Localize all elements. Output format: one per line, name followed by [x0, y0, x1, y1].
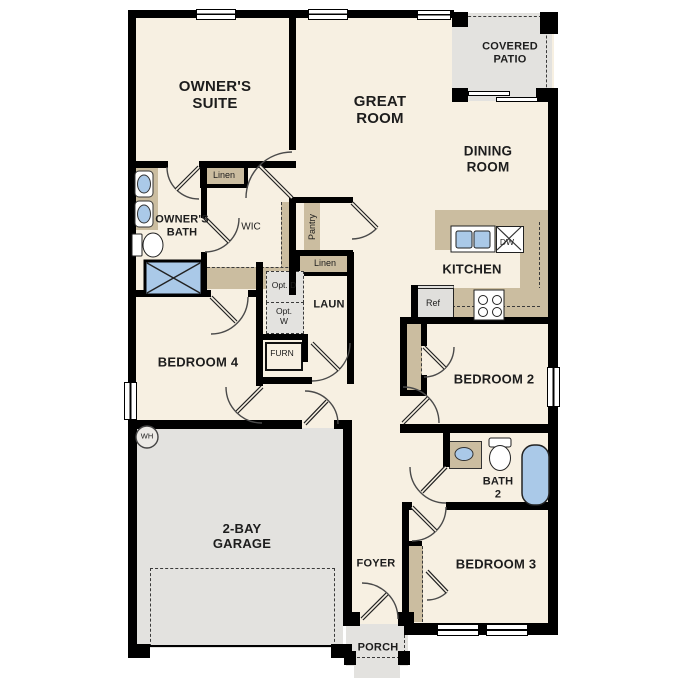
porch-step: [354, 666, 400, 678]
wall-suite-right: [289, 16, 296, 150]
wall-suite-bottom-b: [199, 161, 296, 168]
label-bedroom2: BEDROOM 2: [429, 373, 559, 388]
wall-patio-post-tl: [452, 12, 468, 27]
label-dining-room: DINING ROOM: [453, 143, 523, 174]
label-pantry: Pantry: [307, 214, 317, 240]
label-opt-washer: Opt. W: [271, 307, 297, 327]
window-suite: [196, 9, 236, 20]
label-refrigerator: Ref: [426, 298, 440, 308]
label-wic: WIC: [241, 221, 260, 233]
wall-bed4-right: [256, 290, 263, 386]
label-great-room: GREAT ROOM: [345, 93, 415, 128]
wall-bath2-bottom-b: [446, 502, 558, 510]
wall-bed2-closet-right-a: [421, 324, 427, 346]
bedroom2-closet: [405, 322, 422, 392]
label-water-heater: WH: [141, 433, 154, 442]
wall-bed2-closet-bottom: [400, 390, 427, 396]
wall-laundry-bottom: [256, 377, 312, 384]
window-bedroom4: [124, 382, 137, 420]
wall-laundry-right: [347, 252, 354, 384]
kitchen-counter-front-dashed: [452, 306, 540, 307]
wall-bath-bed4-a: [134, 290, 211, 297]
garage-opening-line: [150, 645, 331, 647]
wall-wic-left-b: [201, 252, 207, 295]
sliding-door-pane-2: [496, 97, 538, 102]
label-covered-patio: COVERED PATIO: [474, 40, 546, 65]
label-linen-upper: Linen: [213, 170, 235, 180]
label-dishwasher: DW: [500, 238, 514, 248]
label-linen-hall: Linen: [314, 258, 336, 268]
wall-left-garage: [128, 425, 137, 653]
label-garage: 2-BAY GARAGE: [195, 522, 290, 552]
label-kitchen: KITCHEN: [442, 263, 501, 278]
wall-patio-post-br: [536, 88, 558, 102]
wall-pantry-bottom: [289, 250, 353, 256]
wall-bath2-left: [443, 433, 450, 467]
wall-foyer-right: [402, 502, 409, 623]
label-furnace: FURN: [270, 349, 294, 359]
floor-plan: OWNER'S SUITE GREAT ROOM COVERED PATIO D…: [0, 0, 687, 687]
wall-garage-bl: [128, 644, 150, 658]
sliding-door-pane-1: [468, 91, 510, 96]
window-great-room-2: [417, 10, 451, 20]
wall-garage-right: [343, 420, 352, 616]
wall-bed3-bottom: [404, 623, 558, 635]
label-bedroom4: BEDROOM 4: [133, 356, 263, 371]
wall-bed3-closet-top: [405, 541, 422, 546]
wall-furn-top: [256, 334, 308, 340]
wall-patio-post-bl: [452, 88, 468, 102]
wall-right: [548, 88, 558, 635]
wall-corridor-bed2: [400, 317, 407, 394]
porch-post-br: [398, 651, 410, 665]
porch-post-bl: [344, 651, 356, 665]
label-owners-bath: OWNER'S BATH: [149, 213, 215, 238]
wall-bed2-top: [405, 317, 558, 324]
wall-pantry-top: [289, 197, 353, 203]
window-great-room: [308, 9, 348, 20]
label-foyer: FOYER: [357, 558, 396, 571]
wall-garage-top-a: [128, 420, 302, 429]
wall-bed2-bath2: [400, 424, 558, 433]
label-opt-dryer: Opt. D: [271, 281, 297, 291]
bath2-sink-counter: [449, 441, 482, 469]
wall-furn-right: [302, 334, 308, 362]
label-owners-suite: OWNER'S SUITE: [160, 78, 270, 113]
garage-door-dashed: [150, 568, 335, 647]
label-bedroom3: BEDROOM 3: [431, 558, 561, 573]
label-laundry: LAUN: [313, 299, 344, 312]
window-bedroom3-1: [437, 624, 479, 636]
label-bath2: BATH 2: [479, 475, 517, 500]
label-porch: PORCH: [358, 642, 399, 655]
wall-patio-post-tr: [540, 12, 558, 34]
window-bedroom3-2: [486, 624, 528, 636]
wall-suite-bottom-a: [134, 161, 168, 168]
wall-wic-left-a: [201, 161, 207, 218]
